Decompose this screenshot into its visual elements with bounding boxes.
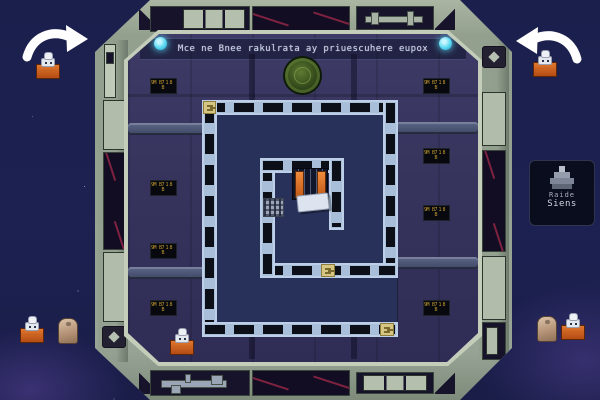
- game-viewport: Mce ne Bnee rakulrata ay priuescuhere eu…: [0, 0, 600, 400]
- wall-seam: [249, 337, 255, 359]
- tooltip: Raide Siens: [529, 160, 595, 226]
- yellow-tile[interactable]: [380, 323, 394, 336]
- pipe-fitting-icon: [407, 11, 414, 26]
- maze-wall-outer-bottom: [202, 322, 398, 337]
- wall-sign: M 718 B9 B: [150, 78, 177, 94]
- frame-panel-top-left: [150, 6, 250, 32]
- crewmate-sprite[interactable]: [561, 313, 585, 340]
- tooltip-subtitle: Siens: [530, 199, 594, 209]
- rail-panel-light: [103, 252, 127, 322]
- rail-window-left: [103, 152, 127, 250]
- rail-panel-light: [482, 256, 506, 320]
- rail-panel-dark: [482, 322, 506, 360]
- cyan-lamp-right: [439, 37, 452, 50]
- wall-seam: [351, 54, 357, 100]
- star: [84, 186, 85, 187]
- cyan-lamp-left: [154, 37, 167, 50]
- maze-wall-outer-right: [383, 100, 398, 278]
- frame-window-top-center: [252, 6, 350, 32]
- yellow-tile[interactable]: [203, 101, 216, 114]
- wall-sign: M 718 B9 B: [423, 300, 450, 316]
- qr-panel[interactable]: [263, 198, 284, 217]
- diamond-badge-left: [102, 326, 126, 348]
- gun-grip-icon: [171, 385, 181, 394]
- wall-seam: [249, 54, 255, 100]
- frame-brace-top-right: [435, 6, 455, 30]
- rail-panel-light: [486, 327, 498, 355]
- rail-window-right: [482, 150, 506, 252]
- light-bars: [183, 9, 245, 29]
- gun-stock-icon: [211, 375, 223, 385]
- wall-sign: M 718 B9 B: [423, 205, 450, 221]
- pipe-fitting-icon: [371, 12, 379, 25]
- frame-panel-bottom-right: [356, 372, 434, 394]
- crewmate-sprite[interactable]: [20, 316, 44, 343]
- rock-sprite[interactable]: [537, 316, 557, 342]
- rail-panel-light: [103, 100, 127, 150]
- crewmate-sprite[interactable]: [36, 52, 60, 79]
- diamond-badge-right: [482, 46, 506, 68]
- tooltip-title: Raide: [530, 191, 594, 199]
- crewmate-sprite[interactable]: [170, 328, 194, 355]
- yellow-tile[interactable]: [321, 264, 335, 277]
- frame-window-bottom-center: [252, 370, 350, 396]
- light-bars: [363, 375, 427, 391]
- banner: Mce ne Bnee rakulrata ay priuescuhere eu…: [140, 38, 466, 60]
- rail-panel-light: [482, 92, 506, 146]
- star: [77, 290, 79, 292]
- pipe: [128, 123, 206, 135]
- star: [32, 116, 33, 117]
- wall-sign: M 718 B9 B: [150, 180, 177, 196]
- frame-panel-bottom-left: [150, 370, 250, 396]
- wall-seam: [351, 337, 357, 359]
- wall-sign: M 718 B9 B: [423, 78, 450, 94]
- pipe: [396, 122, 478, 134]
- pipe: [396, 257, 478, 269]
- space-station: Mce ne Bnee rakulrata ay priuescuhere eu…: [95, 0, 512, 400]
- ship-icon: [547, 166, 577, 190]
- frame-brace-bottom-right: [435, 370, 455, 394]
- pipe: [128, 267, 206, 279]
- station-interior: Mce ne Bnee rakulrata ay priuescuhere eu…: [128, 34, 478, 362]
- crewmate-sprite[interactable]: [533, 50, 557, 77]
- maze-wall-center-stub: [329, 158, 344, 230]
- wall-sign: M 718 B9 B: [150, 243, 177, 259]
- banner-text: Mce ne Bnee rakulrata ay priuescuhere eu…: [178, 44, 428, 54]
- maze-wall-outer-left: [202, 100, 217, 337]
- maze-wall-inner-left: [260, 158, 275, 278]
- gun-sight-icon: [185, 374, 191, 383]
- rock-sprite[interactable]: [58, 318, 78, 344]
- frame-panel-top-right: [356, 6, 434, 30]
- station-seal-icon: [285, 58, 320, 93]
- bed[interactable]: [296, 192, 330, 212]
- wall-sign: M 718 B9 B: [150, 300, 177, 316]
- wall-sign: M 718 B9 B: [423, 148, 450, 164]
- rail-panel: [106, 52, 114, 64]
- maze-floor: [202, 100, 398, 337]
- maze-wall-outer-top: [202, 100, 398, 115]
